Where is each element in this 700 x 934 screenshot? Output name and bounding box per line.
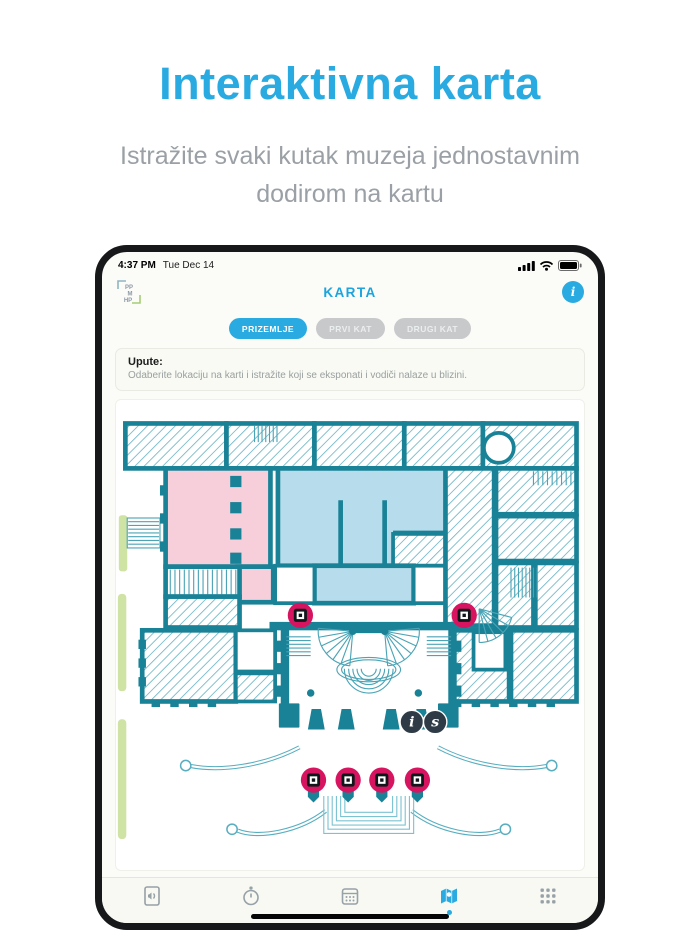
screen-title: KARTA [102, 285, 598, 300]
svg-text:i: i [409, 715, 414, 731]
room-pink[interactable] [166, 468, 271, 566]
top-rooms[interactable] [125, 423, 576, 468]
map-icon [437, 884, 461, 908]
garden-strips [118, 515, 127, 839]
map-marker-qr[interactable] [405, 767, 430, 792]
tabbar-item-more[interactable] [525, 884, 571, 908]
map-marker-qr[interactable] [452, 603, 477, 628]
map-canvas[interactable]: is [115, 399, 585, 871]
room-pink-corridor[interactable] [238, 567, 274, 603]
calendar-icon [338, 884, 362, 908]
grid-icon [536, 884, 560, 908]
entry-steps [337, 657, 401, 693]
pocket-watch-icon [239, 884, 263, 908]
hero-section: Interaktivna karta Istražite svaki kutak… [0, 0, 700, 213]
tab-prizemlje[interactable]: PRIZEMLJE [229, 318, 307, 339]
tabbar-item-history[interactable] [228, 884, 274, 908]
instructions-body: Odaberite lokaciju na karti i istražite … [128, 370, 572, 381]
tabbar-item-audio-guide[interactable] [129, 884, 175, 908]
map-marker-qr[interactable] [335, 767, 360, 792]
signal-icon [518, 260, 535, 271]
status-date: Tue Dec 14 [163, 260, 214, 271]
map-marker-i[interactable]: i [400, 710, 423, 733]
front-staircase [324, 796, 414, 833]
page-title: Interaktivna karta [0, 58, 700, 110]
right-lower-rooms[interactable] [451, 630, 576, 707]
status-time: 4:37 PM [118, 260, 156, 271]
map-marker-qr[interactable] [301, 767, 326, 792]
audio-guide-icon [140, 884, 164, 908]
info-button[interactable]: i [562, 281, 584, 303]
svg-text:s: s [431, 715, 439, 731]
home-indicator[interactable] [251, 914, 449, 919]
floorplan-svg[interactable]: is [116, 400, 584, 870]
entrance-hall [270, 622, 468, 707]
instructions-box: Upute: Odaberite lokaciju na karti i ist… [115, 348, 585, 391]
map-marker-qr[interactable] [369, 767, 394, 792]
page-subtitle: Istražite svaki kutak muzeja jednostavni… [78, 138, 623, 213]
bottom-tab-bar [102, 877, 598, 923]
status-bar: 4:37 PM Tue Dec 14 [102, 252, 598, 272]
device-frame: 4:37 PM Tue Dec 14 [95, 245, 605, 930]
side-stairs-left [127, 518, 160, 548]
tabbar-item-map[interactable] [426, 884, 472, 915]
app-header: PP M HP KARTA i [102, 272, 598, 312]
tab-drugi-kat[interactable]: DRUGI KAT [394, 318, 471, 339]
floor-tabs: PRIZEMLJE PRVI KAT DRUGI KAT [102, 318, 598, 339]
side-stairs-entrance [286, 637, 451, 656]
wifi-icon [539, 260, 554, 271]
room-blue-lower[interactable] [314, 566, 413, 603]
map-marker-s[interactable]: s [423, 710, 446, 733]
tab-prvi-kat[interactable]: PRVI KAT [316, 318, 385, 339]
instructions-title: Upute: [128, 356, 572, 368]
battery-icon [558, 260, 582, 271]
map-marker-qr[interactable] [288, 603, 313, 628]
tabbar-item-calendar[interactable] [327, 884, 373, 908]
